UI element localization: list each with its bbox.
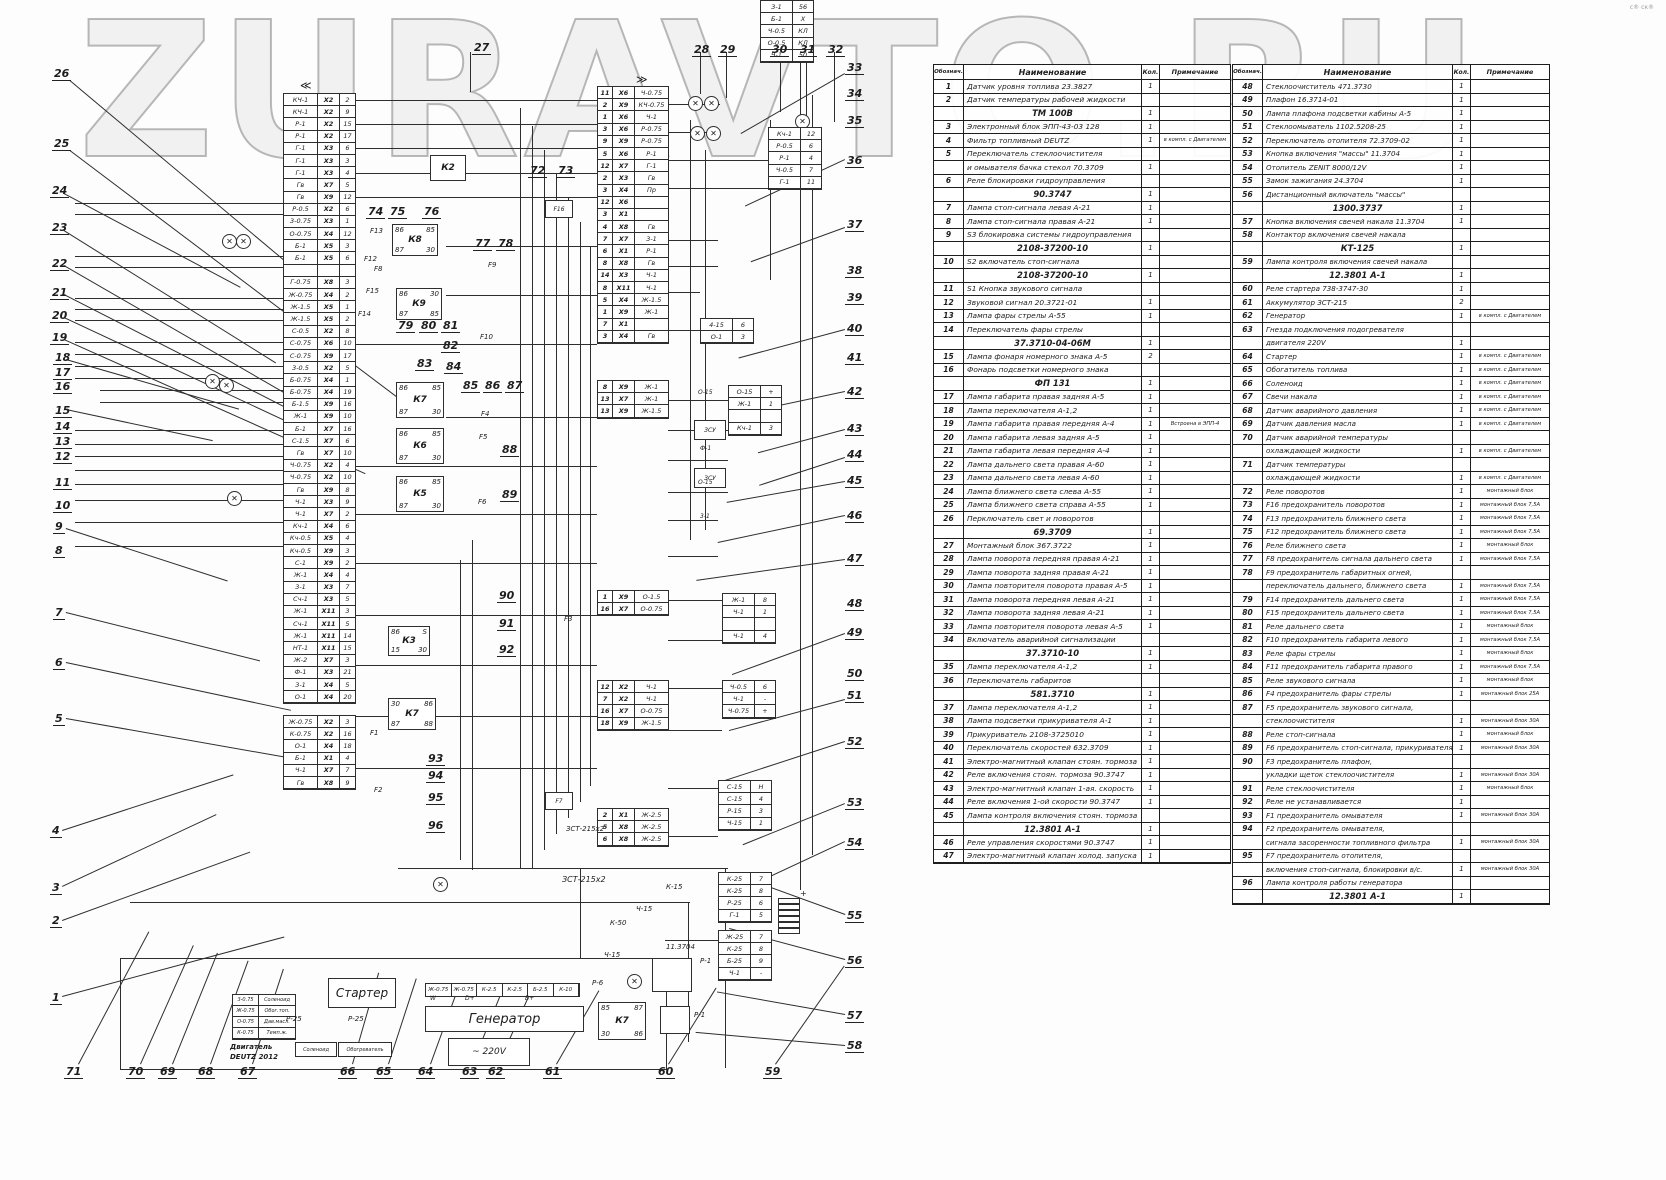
callout-number: 62 [486, 1066, 505, 1079]
terminal-row: 4-156 [701, 319, 753, 331]
callout-number: 76 [422, 206, 441, 219]
connector-row: Ч-1X72 [284, 508, 355, 520]
connector-row: 12X2Ч-1 [598, 681, 668, 693]
connector-row: 3-0.5X25 [284, 362, 355, 374]
wire-segment [668, 788, 718, 789]
engine-wire-row: К-0.75Темп.ж. [233, 1028, 295, 1039]
table-row: 43 Электро-магнитный клапан 1-ая. скорос… [934, 782, 1230, 796]
component-box: ~ 220V [448, 1038, 530, 1066]
callout-number: 84 [444, 361, 463, 374]
callout-number: 60 [656, 1066, 675, 1079]
connector-row: Б-1X716 [284, 423, 355, 435]
wire-label: Ф-1 [700, 446, 711, 452]
callout-number: 70 [126, 1066, 145, 1079]
wire-segment [75, 444, 283, 445]
component-box: Генератор [425, 1006, 584, 1032]
connector-row: Г-1X33 [284, 155, 355, 167]
wire-segment [352, 344, 597, 345]
table-row: 28 Лампа поворота передняя правая А-21 1 [934, 553, 1230, 567]
connector-row: С-1X92 [284, 557, 355, 569]
leader-line [66, 662, 291, 711]
callout-number: 22 [50, 258, 69, 271]
table-row: 24 Лампа ближнего света слева А-55 1 [934, 485, 1230, 499]
callout-number: 35 [845, 115, 864, 128]
table-row: 3 Электронный блок ЭПП-43-03 128 1 [934, 121, 1230, 135]
relay-box: 8685 К7 8730 [396, 382, 444, 418]
table-row: 94 F2 предохранитель омывателя, [1233, 823, 1549, 837]
wire-label: D+ [465, 996, 475, 1002]
wire-segment [352, 197, 597, 198]
callout-number: 43 [845, 423, 864, 436]
terminal-table: Ж-257 К-258 Б-259 Ч-1- [718, 930, 772, 981]
connector-row: 3-1X45 [284, 679, 355, 691]
wire-label: О-15 [698, 390, 713, 396]
callout-number: 9 [53, 521, 65, 534]
connector-row: 13X9Ж-1.5 [598, 405, 668, 417]
wire-segment [75, 430, 283, 431]
callout-number: 32 [826, 44, 845, 57]
callout-number: 6 [53, 657, 65, 670]
callout-number: 26 [52, 68, 71, 81]
table-row: 56 Дистанционный включатель "массы" [1233, 188, 1549, 202]
table-row: переключатель дальнего, ближнего света 1… [1233, 580, 1549, 594]
terminal-row: Г-15 [719, 910, 771, 922]
leader-line [62, 814, 216, 887]
callout-number: 23 [50, 222, 69, 235]
wire-label: + [800, 890, 807, 898]
header-note: Примечание [1471, 65, 1549, 79]
terminal-row: Ж-11 [729, 398, 781, 410]
table-row: 83 Реле фары стрелы 1 монтажный блок [1233, 647, 1549, 661]
wire-segment [580, 222, 581, 802]
terminal-row: Ч-11 [723, 606, 775, 618]
table-row: 33 Лампа повторителя поворота левая А-5 … [934, 620, 1230, 634]
callout-number: 37 [845, 219, 864, 232]
leader-line [696, 1032, 846, 1046]
terminal-table: Ж-18 Ч-11 Ч-14 [722, 593, 776, 644]
wire-label: Ч-15 [636, 906, 652, 913]
table-row: 39 Прикуриватель 2108-3725010 1 [934, 728, 1230, 742]
wire-segment [668, 460, 728, 461]
callout-number: 88 [500, 444, 519, 457]
connector-row: Ж-1.5X51 [284, 301, 355, 313]
callout-number: 87 [505, 380, 524, 393]
connector-row: Ч-0.75X210 [284, 472, 355, 484]
table-row: 95 F7 предохранитель отопителя, [1233, 850, 1549, 864]
callout-number: 78 [496, 238, 515, 251]
wire-segment [352, 124, 597, 125]
table-row: 35 Лампа переключателя А-1,2 1 [934, 661, 1230, 675]
connector-row: 12X7Г-1 [598, 160, 668, 172]
wire-segment [352, 514, 597, 515]
table-row: 23 Лампа дальнего света левая А-60 1 [934, 472, 1230, 486]
wire-segment [668, 600, 722, 601]
callout-number: 64 [416, 1066, 435, 1079]
lamp-symbol [688, 96, 703, 111]
wire-segment [352, 768, 597, 769]
connector-strip-center: 11X6Ч-0.75 2X9КЧ-0.75 1X6Ч-1 3X6Р-0.75 9… [597, 86, 669, 344]
component-box: Соленоид [295, 1042, 337, 1057]
table-row: 89 F6 предохранитель стоп-сигнала, прику… [1233, 742, 1549, 756]
connector-row: 3-1X37 [284, 582, 355, 594]
connector-row: ГвX912 [284, 192, 355, 204]
connector-row: 2X1Ж-2.5 [598, 809, 668, 821]
wire-segment [75, 267, 283, 268]
table-row: 67 Свечи накала 1 в компл. с Двигателем [1233, 391, 1549, 405]
connector-row: 5X6Р-1 [598, 148, 668, 160]
table-row: 9 S3 блокировка системы гидроуправления [934, 229, 1230, 243]
table-row: 85 Реле звукового сигнала 1 монтажный бл… [1233, 674, 1549, 688]
callout-number: 61 [543, 1066, 562, 1079]
callout-number: 69 [158, 1066, 177, 1079]
wire-label: F12 [364, 256, 377, 263]
callout-number: 73 [556, 165, 575, 178]
callout-number: 65 [374, 1066, 393, 1079]
connector-row: Сч-1X115 [284, 618, 355, 630]
lamp-symbol [627, 974, 642, 989]
table-row: 49 Плафон 16.3714-01 1 [1233, 94, 1549, 108]
table-row: 75 F12 предохранитель ближнего света 1 м… [1233, 526, 1549, 540]
connector-row: ГвX89 [284, 777, 355, 789]
wire-segment [446, 417, 597, 418]
callout-number: 17 [53, 367, 72, 380]
wire-label: F4 [481, 411, 489, 418]
callout-number: 42 [845, 386, 864, 399]
parts-table-header: Обознач. Наименование Кол. Примечание [934, 65, 1230, 80]
connector-row: Сч-1X35 [284, 594, 355, 606]
lamp-symbol [690, 126, 705, 141]
connector-row: Б-0.75X419 [284, 387, 355, 399]
connector-row: С-0.75X917 [284, 350, 355, 362]
terminal-row: Г-111 [769, 177, 821, 189]
table-row: 31 Лампа поворота передняя левая А-21 1 [934, 593, 1230, 607]
connector-row: Ж-0.75X23 [284, 716, 355, 728]
connector-row: Ж-1X44 [284, 569, 355, 581]
table-row: ТМ 100В 1 [934, 107, 1230, 121]
terminal-table: Ч-0.56 Ч-1- Ч-0.75+ [722, 680, 776, 719]
leader-line [717, 991, 845, 1015]
wire-segment [668, 640, 722, 641]
wire-segment [75, 203, 283, 204]
callout-number: 91 [497, 618, 516, 631]
callout-number: 81 [441, 320, 460, 333]
connector-row: 1X6Ч-1 [598, 111, 668, 123]
header-ref: Обознач. [934, 65, 964, 79]
wire-segment [668, 556, 718, 557]
connector-row: 16X7О-0.75 [598, 603, 668, 615]
table-row: включения стоп-сигнала, блокировки в/с. … [1233, 863, 1549, 877]
callout-number: 66 [338, 1066, 357, 1079]
connector-row: Б-1X14 [284, 753, 355, 765]
callout-number: 2 [50, 915, 62, 928]
wire-segment [700, 52, 701, 94]
connector-row: К-0.75X216 [284, 728, 355, 740]
wire-segment [75, 309, 283, 310]
terminal-row: 3-156 [761, 1, 813, 13]
table-row: КТ-125 1 [1233, 242, 1549, 256]
terminal-row: Р-153 [719, 805, 771, 817]
wire-segment [726, 52, 727, 98]
wire-label: Р-1 [694, 1012, 705, 1019]
connector-row: Р-1X215 [284, 118, 355, 130]
connector-row: Б-1X56 [284, 252, 355, 264]
table-row: 7 Лампа стоп-сигнала левая А-21 1 [934, 202, 1230, 216]
connector-row: Р-0.5X26 [284, 204, 355, 216]
callout-number: 29 [718, 44, 737, 57]
callout-number: 41 [845, 352, 864, 365]
callout-number: 7 [53, 607, 65, 620]
connector-strip-left-2: Ж-0.75X23 К-0.75X216 О-1X418 Б-1X14 Ч-1X… [283, 715, 356, 790]
lamp-symbol [236, 234, 251, 249]
connector-row: 5X4Ж-1.5 [598, 294, 668, 306]
table-row: 66 Соленоид 1 в компл. с Двигателем [1233, 377, 1549, 391]
callout-number: 11 [53, 477, 72, 490]
table-row: 68 Датчик аварийного давления 1 в компл.… [1233, 404, 1549, 418]
wire-segment [75, 484, 283, 485]
table-row: 47 Электро-магнитный клапан холод. запус… [934, 850, 1230, 864]
wire-label: 3-1 [700, 514, 710, 520]
table-row: 2108-37200-10 1 [934, 269, 1230, 283]
connector-row: 13X7Ж-1 [598, 393, 668, 405]
table-row: 58 Контактор включения свечей накала [1233, 229, 1549, 243]
wire-segment [568, 198, 569, 818]
connector-row: НТ-1X1115 [284, 642, 355, 654]
callout-number: 89 [500, 489, 519, 502]
wire-label: F6 [478, 499, 486, 506]
table-row: 48 Стеклоочиститель 471.3730 1 [1233, 80, 1549, 94]
wire-label: Двигатель [230, 1044, 272, 1051]
table-row: 8 Лампа стоп-сигнала правая А-21 1 [934, 215, 1230, 229]
wire-segment [556, 174, 557, 834]
table-row: 25 Лампа ближнего света справа А-55 1 [934, 499, 1230, 513]
wire-label: К-15 [666, 884, 682, 891]
table-row: 96 Лампа контроля работы генератора [1233, 877, 1549, 891]
connector-row: 7X73-1 [598, 233, 668, 245]
callout-number: 95 [426, 792, 445, 805]
table-row: 65 Обогатитель топлива 1 в компл. с Двиг… [1233, 364, 1549, 378]
wire-segment [590, 246, 591, 786]
connector-row: КЧ-1X29 [284, 106, 355, 118]
table-row: 90 F3 предохранитель плафон, [1233, 755, 1549, 769]
wire-label: F14 [358, 311, 371, 318]
callout-number: 34 [845, 88, 864, 101]
wire-segment [446, 246, 597, 247]
table-row: 86 F4 предохранитель фары стрелы 1 монта… [1233, 688, 1549, 702]
callout-number: 79 [396, 320, 415, 333]
table-row: 30 Лампа повторителя поворота правая А-5… [934, 580, 1230, 594]
wire-label: B+ [525, 996, 534, 1002]
table-row: 41 Электро-магнитный клапан стоян. тормо… [934, 755, 1230, 769]
parts-table-body: 48 Стеклоочиститель 471.3730 1 49 Плафон… [1233, 80, 1549, 904]
table-row: 52 Переключатель отопителя 72.3709-02 1 [1233, 134, 1549, 148]
connector-row: 7X1 [598, 319, 668, 331]
table-row: сигнала засоренности топливного фильтра … [1233, 836, 1549, 850]
table-row: 38 Лампа подсветки прикуривателя А-1 1 [934, 715, 1230, 729]
table-row: 42 Реле включения стоян. тормоза 90.3747… [934, 769, 1230, 783]
terminal-row: Кч-112 [769, 128, 821, 140]
callout-number: 16 [53, 381, 72, 394]
wire-label: 11.3704 [666, 944, 695, 951]
connector-row: 2X3Гв [598, 172, 668, 184]
table-row: 40 Переключатель скоростей 632.3709 1 [934, 742, 1230, 756]
connector-row: Б-1X53 [284, 240, 355, 252]
leader-line [727, 481, 845, 503]
table-row: 4 Фильтр топливный DEUTZ 1 в компл. с Дв… [934, 134, 1230, 148]
connector-row: 8X11Ч-1 [598, 282, 668, 294]
leader-line [66, 528, 228, 581]
wire-segment [472, 540, 473, 870]
generator-terminal: К-10 [554, 984, 580, 996]
callout-number: 10 [53, 500, 72, 513]
wire-segment [75, 500, 283, 501]
callout-number: 57 [845, 1010, 864, 1023]
table-row: 54 Отопитель ZENIT 8000/12V 1 [1233, 161, 1549, 175]
wire-label: F15 [366, 288, 379, 295]
relay-box: 8685 К6 8730 [396, 428, 444, 464]
wire-segment [352, 148, 597, 149]
connector-strip-center-2: 8X9Ж-1 13X7Ж-1 13X9Ж-1.5 [597, 380, 669, 419]
table-row: 88 Реле стоп-сигнала 1 монтажный блок [1233, 728, 1549, 742]
callout-number: 3 [50, 882, 62, 895]
connector-row: О-1X418 [284, 740, 355, 752]
terminal-table: Кч-112 Р-0.56 Р-14 Ч-0.57 Г-111 [768, 127, 822, 190]
table-row: 46 Реле управления скоростями 90.3747 1 [934, 836, 1230, 850]
callout-number: 50 [845, 668, 864, 681]
component-box: Обогреватель [338, 1042, 392, 1057]
wire-segment [398, 868, 728, 869]
wire-segment [668, 240, 718, 241]
connector-row: О-0.75X412 [284, 228, 355, 240]
terminal-row: К-258 [719, 943, 771, 955]
wire-label: F13 [370, 228, 383, 235]
terminal-row [723, 618, 775, 630]
wire-segment [544, 150, 545, 850]
connector-row: 7X2Ч-1 [598, 693, 668, 705]
table-row: 84 F11 предохранитель габарита правого 1… [1233, 661, 1549, 675]
connector-row: 9X9Р-0.75 [598, 136, 668, 148]
terminal-row: Б-259 [719, 955, 771, 967]
wire-segment [812, 95, 813, 855]
wire-segment [75, 522, 283, 523]
table-row: охлаждающей жидкости 1 в компл. с Двигат… [1233, 445, 1549, 459]
wire-label: F8 [374, 266, 382, 273]
leader-line [64, 193, 241, 288]
relay-box: 8630 К9 8785 [396, 288, 442, 320]
connector-row: Кч-0.5X54 [284, 533, 355, 545]
engine-wire-row: 3-0.75Соленоид [233, 995, 295, 1006]
wire-segment [668, 688, 722, 689]
connector-row: Ж-1X910 [284, 411, 355, 423]
table-row: 64 Стартер 1 в компл. с Двигателем [1233, 350, 1549, 364]
callout-number: 48 [845, 598, 864, 611]
connector-row: 14X3Ч-1 [598, 270, 668, 282]
connector-row: С-0.5X28 [284, 326, 355, 338]
leader-line [62, 852, 250, 921]
terminal-row: Ч-151 [719, 818, 771, 830]
connector-row: Б-0.75X41 [284, 374, 355, 386]
callout-number: 25 [52, 138, 71, 151]
callout-number: 39 [845, 292, 864, 305]
callout-number: 83 [415, 358, 434, 371]
callout-number: 27 [472, 42, 491, 55]
wire-segment [668, 292, 700, 293]
callout-number: 67 [238, 1066, 257, 1079]
terminal-row: С-154 [719, 793, 771, 805]
table-row: 12.3801 А-1 1 [1233, 269, 1549, 283]
table-row: ФП 131 1 [934, 377, 1230, 391]
corner-mark: с® ск® [1630, 4, 1654, 11]
parts-table-body: 1 Датчик уровня топлива 23.3827 1 2 Датч… [934, 80, 1230, 863]
table-row: охлаждающей жидкости 1 в компл. с Двигат… [1233, 472, 1549, 486]
parts-table-left: Обознач. Наименование Кол. Примечание 1 … [933, 64, 1231, 864]
terminal-row: Ч-1- [723, 693, 775, 705]
callout-number: 13 [53, 436, 72, 449]
leader-line [721, 741, 845, 782]
table-row: 79 F14 предохранитель дальнего света 1 м… [1233, 593, 1549, 607]
connector-row: Ж-1X113 [284, 606, 355, 618]
table-row: 20 Лампа габарита левая задняя А-5 1 [934, 431, 1230, 445]
terminal-row: Ж-257 [719, 931, 771, 943]
header-ref: Обознач. [1233, 65, 1263, 79]
lamp-symbol [704, 96, 719, 111]
header-name: Наименование [1263, 65, 1453, 79]
wire-segment [352, 563, 597, 564]
callout-number: 45 [845, 475, 864, 488]
callout-number: 47 [845, 553, 864, 566]
callout-number: 55 [845, 910, 864, 923]
wire-segment [668, 188, 768, 189]
wire-segment [100, 402, 283, 403]
table-row: 13 Лампа фары стрелы А-55 1 [934, 310, 1230, 324]
terminal-table: О-15+ Ж-11 Кч-13 [728, 385, 782, 436]
callout-number: 36 [845, 155, 864, 168]
table-row: 45 Лампа контроля включения стоян. тормо… [934, 809, 1230, 823]
terminal-table: 4-156 О-13 [700, 318, 754, 344]
terminal-row [729, 410, 781, 422]
wire-segment [75, 366, 283, 367]
table-row: 55 Замок зажигания 24.3704 1 [1233, 175, 1549, 189]
callout-number: 86 [483, 380, 502, 393]
wire-label: ≫ [636, 74, 648, 85]
wire-segment [668, 330, 700, 331]
terminal-row: Ч-0.75+ [723, 705, 775, 717]
header-name: Наименование [964, 65, 1142, 79]
wire-label: О-15 [698, 480, 713, 486]
connector-row: 6X8Ж-2.5 [598, 833, 668, 845]
header-qty: Кол. [1453, 65, 1471, 79]
callout-number: 28 [692, 44, 711, 57]
terminal-row: Кч-13 [729, 423, 781, 435]
table-row: 87 F5 предохранитель звукового сигнала, [1233, 701, 1549, 715]
connector-row: 3X1 [598, 209, 668, 221]
connector-row: 8X9Ж-1 [598, 381, 668, 393]
table-row: 2 Датчик температуры рабочей жидкости [934, 94, 1230, 108]
wire-segment [75, 456, 283, 457]
callout-number: 49 [845, 627, 864, 640]
leader-line [738, 329, 845, 358]
table-row: 12 Звуковой сигнал 20.3721-01 1 [934, 296, 1230, 310]
leader-line [751, 227, 845, 262]
callout-number: 5 [53, 713, 65, 726]
connector-row: 3X4Пр [598, 185, 668, 197]
generator-terminal: К-2.5 [477, 984, 503, 996]
wire-label: F3 [564, 616, 572, 623]
connector-row: Кч-1X46 [284, 521, 355, 533]
lamp-symbol [219, 378, 234, 393]
callout-number: 63 [460, 1066, 479, 1079]
terminal-table: С-15Н С-154 Р-153 Ч-151 [718, 780, 772, 831]
leader-line [66, 409, 213, 441]
